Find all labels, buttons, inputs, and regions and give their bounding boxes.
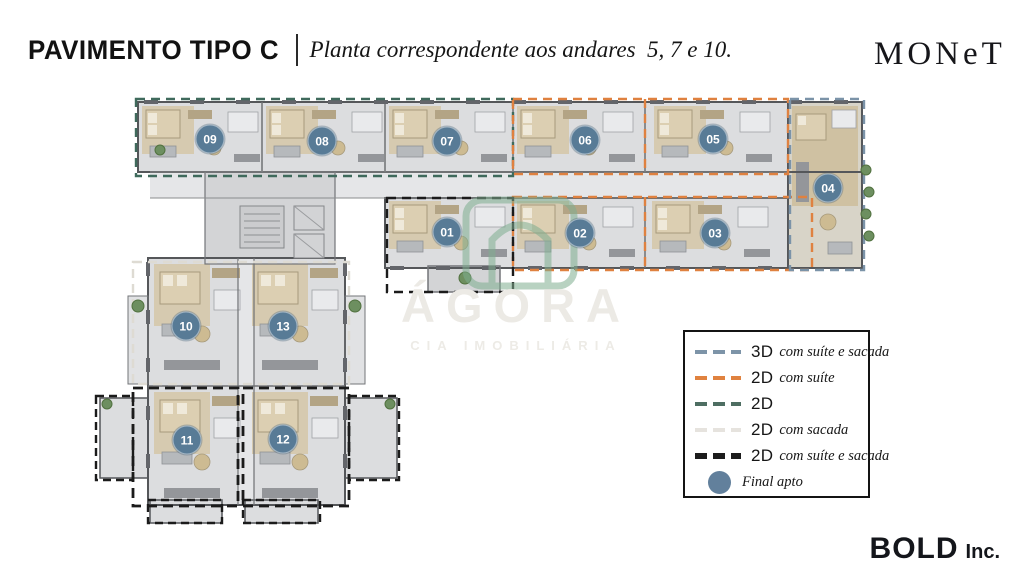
legend-type-label: 3D [751,342,773,362]
bold-logo: BOLD Inc. [870,532,1000,566]
page-subtitle: Planta correspondente aos andares 5, 7 e… [310,37,732,63]
monet-logo: MONeT [874,36,1006,73]
legend-item: 3Dcom suíte e sacada [695,339,868,365]
legend-type-label: 2D [751,394,773,414]
legend-item: 2Dcom sacada [695,417,868,443]
legend-dash-swatch [695,376,741,380]
legend-type-label: 2D [751,420,773,440]
legend-description: com suíte [779,370,834,387]
legend-dash-swatch [695,350,741,354]
title-divider [296,34,298,66]
bold-logo-suffix: Inc. [966,541,1000,564]
legend-item: Final apto [695,469,868,495]
legend-description: Final apto [742,474,803,491]
legend-description: com suíte e sacada [779,448,889,465]
final-apto-marker [708,471,731,494]
legend-items: 3Dcom suíte e sacada2Dcom suíte2D2Dcom s… [695,339,868,495]
legend-dash-swatch [695,402,741,406]
legend-description: com suíte e sacada [779,344,889,361]
header: PAVIMENTO TIPO C Planta correspondente a… [28,34,732,66]
page-title: PAVIMENTO TIPO C [28,35,279,66]
legend-type-label: 2D [751,446,773,466]
legend-item: 2D [695,391,868,417]
legend-item: 2Dcom suíte [695,365,868,391]
legend-dash-swatch [695,428,741,432]
legend-box: 3Dcom suíte e sacada2Dcom suíte2D2Dcom s… [683,330,870,498]
legend-description: com sacada [779,422,848,439]
legend-dash-swatch [695,453,741,459]
floor-plan [0,0,1024,576]
legend-type-label: 2D [751,368,773,388]
page: PAVIMENTO TIPO C Planta correspondente a… [0,0,1024,576]
legend-item: 2Dcom suíte e sacada [695,443,868,469]
bold-logo-main: BOLD [870,532,959,566]
